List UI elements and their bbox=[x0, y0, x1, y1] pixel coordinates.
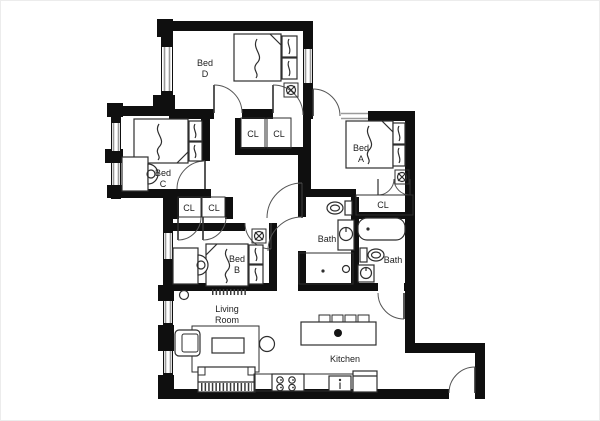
pedestal-sink bbox=[338, 220, 354, 250]
window-bed-c-1 bbox=[112, 123, 120, 151]
label-closet: CL bbox=[183, 203, 195, 213]
window-bed-d-left bbox=[162, 47, 172, 91]
floor-plan-canvas: Bed D Bed C Bed A Bed B Bath Bath Living… bbox=[0, 0, 600, 421]
label-living-room: Room bbox=[215, 315, 239, 325]
toilet bbox=[360, 248, 384, 262]
label-bed-a: Bed bbox=[353, 143, 369, 153]
stool bbox=[332, 315, 343, 322]
room-labels: Bed D Bed C Bed A Bed B Bath Bath Living… bbox=[155, 58, 402, 364]
label-bed-d: D bbox=[202, 69, 209, 79]
pedestal-sink bbox=[358, 265, 374, 282]
label-closet: CL bbox=[273, 129, 285, 139]
window-living-2 bbox=[164, 351, 172, 373]
coffee-table bbox=[212, 338, 244, 353]
bed-d-mattress bbox=[234, 34, 281, 81]
kitchen-island bbox=[301, 315, 376, 345]
door-entry bbox=[449, 367, 475, 393]
label-living-room: Living bbox=[215, 304, 239, 314]
stool bbox=[358, 315, 369, 322]
label-bed-b: B bbox=[234, 265, 240, 275]
door-bed-c bbox=[177, 161, 205, 189]
label-closet: CL bbox=[208, 203, 220, 213]
door-bed-a bbox=[313, 89, 340, 116]
door-bath-right bbox=[378, 293, 404, 319]
label-bed-a: A bbox=[358, 154, 364, 164]
shower-pan bbox=[299, 253, 353, 284]
smoke-detector-icon bbox=[180, 291, 189, 300]
label-closet: CL bbox=[377, 200, 389, 210]
room-bed-d bbox=[234, 34, 298, 97]
bath-right-fixtures bbox=[358, 218, 405, 282]
label-bed-c: Bed bbox=[155, 168, 171, 178]
window-bed-a-top bbox=[341, 114, 368, 119]
dishwasher bbox=[329, 376, 351, 391]
stool bbox=[319, 315, 330, 322]
room-bed-b bbox=[173, 229, 266, 286]
range-4-burner bbox=[272, 374, 304, 391]
toilet bbox=[327, 201, 352, 215]
refrigerator bbox=[353, 371, 377, 392]
floor-plan-svg: Bed D Bed C Bed A Bed B Bath Bath Living… bbox=[1, 1, 600, 421]
window-bed-b-left bbox=[164, 233, 172, 259]
label-bed-d: Bed bbox=[197, 58, 213, 68]
label-bed-c: C bbox=[160, 179, 167, 189]
label-kitchen: Kitchen bbox=[330, 354, 360, 364]
label-bath-left: Bath bbox=[318, 234, 337, 244]
label-bed-b: Bed bbox=[229, 254, 245, 264]
label-bath-right: Bath bbox=[384, 255, 403, 265]
door-hall-lower bbox=[267, 183, 302, 218]
door-bed-d bbox=[214, 85, 242, 113]
round-side-table bbox=[260, 337, 275, 352]
sofa bbox=[198, 367, 255, 392]
bathtub bbox=[358, 218, 405, 240]
armchair bbox=[175, 330, 200, 356]
window-bed-c-2 bbox=[112, 163, 120, 185]
label-closet: CL bbox=[247, 129, 259, 139]
window-bed-d-right bbox=[304, 49, 312, 83]
ceiling-fan-icon bbox=[252, 229, 266, 243]
desk-with-chair-b bbox=[173, 248, 208, 284]
stool bbox=[345, 315, 356, 322]
window-living-1 bbox=[164, 301, 172, 323]
